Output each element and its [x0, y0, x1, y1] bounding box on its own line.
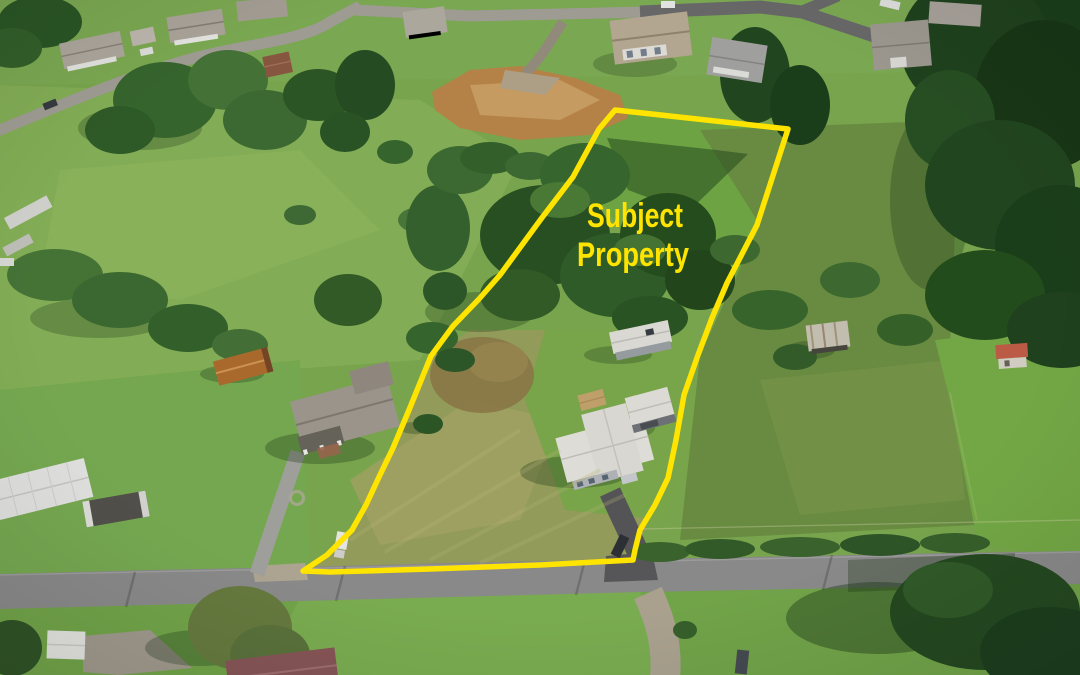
subject-property-label-line2: Property [577, 236, 689, 274]
subject-property-label-line1: Subject [587, 197, 683, 235]
vignette [0, 0, 1080, 675]
aerial-photo: Subject Property [0, 0, 1080, 675]
aerial-photo-canvas: Subject Property [0, 0, 1080, 675]
